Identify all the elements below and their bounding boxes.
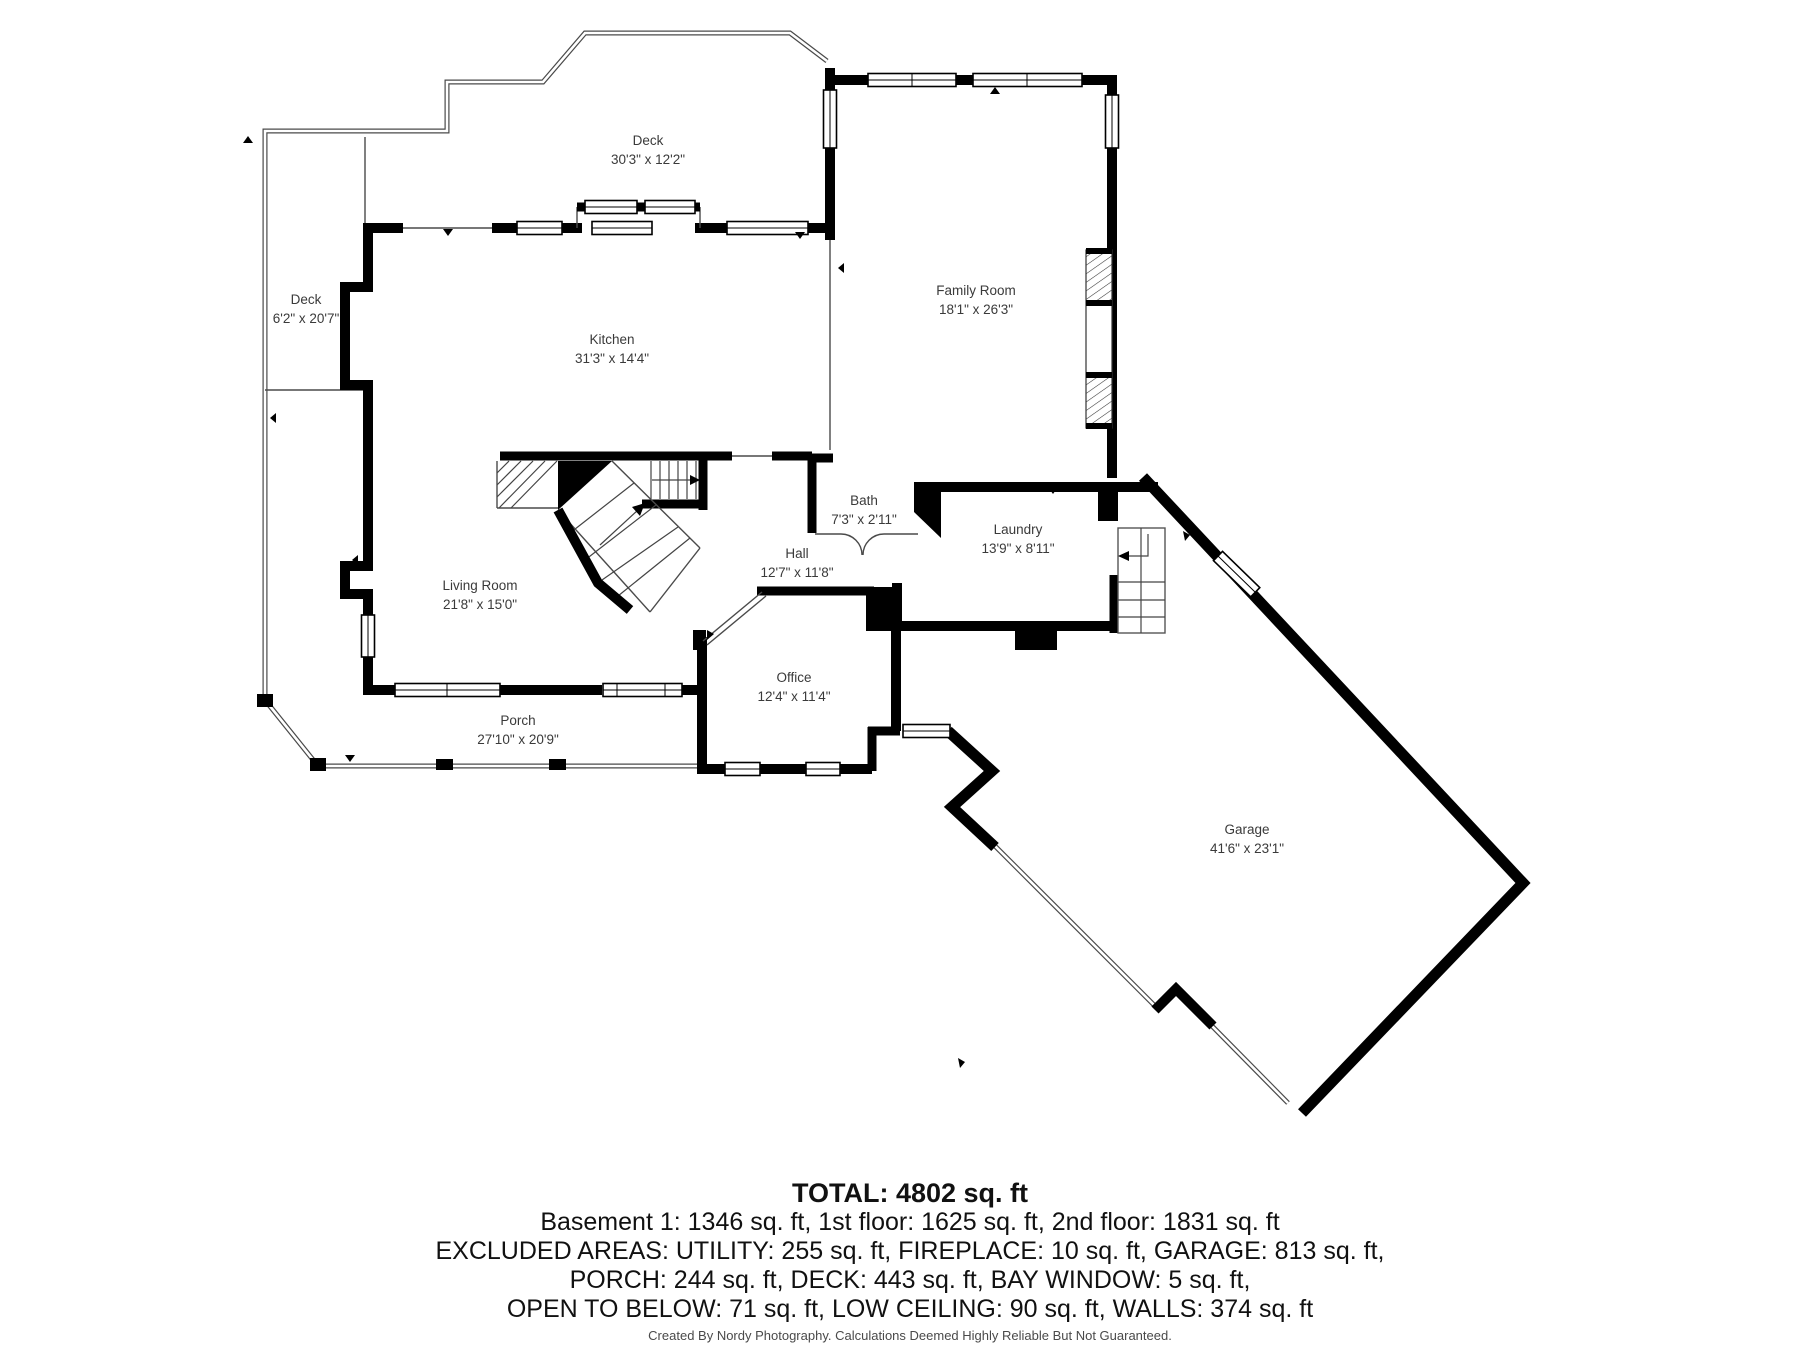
excluded-areas-text: EXCLUDED AREAS: UTILITY: 255 sq. ft, FIR… bbox=[0, 1237, 1820, 1266]
room-dims: 41'6" x 23'1" bbox=[1210, 841, 1284, 856]
room-dims: 31'3" x 14'4" bbox=[575, 351, 649, 366]
floor-plan-page: Deck30'3" x 12'2" Deck6'2" x 20'7" Kitch… bbox=[0, 0, 1820, 1365]
room-dims: 7'3" x 2'11" bbox=[831, 512, 897, 527]
room-name: Kitchen bbox=[589, 332, 634, 347]
room-dims: 18'1" x 26'3" bbox=[939, 302, 1013, 317]
fireplace-bay-window bbox=[1086, 248, 1112, 429]
room-dims: 12'4" x 11'4" bbox=[757, 689, 830, 704]
room-name: Garage bbox=[1224, 822, 1269, 837]
room-name: Porch bbox=[500, 713, 535, 728]
garage-staircase bbox=[1118, 528, 1165, 633]
room-dims: 12'7" x 11'8" bbox=[760, 565, 833, 580]
room-dims: 13'9" x 8'11" bbox=[981, 541, 1054, 556]
room-label-deck-left: Deck6'2" x 20'7" bbox=[273, 290, 340, 328]
room-label-porch: Porch27'10" x 20'9" bbox=[477, 711, 559, 749]
room-label-office: Office12'4" x 11'4" bbox=[757, 668, 830, 706]
room-label-family-room: Family Room18'1" x 26'3" bbox=[936, 281, 1016, 319]
room-label-garage: Garage41'6" x 23'1" bbox=[1210, 820, 1284, 858]
garage-door-lines bbox=[994, 845, 1288, 1103]
excluded-areas-text: PORCH: 244 sq. ft, DECK: 443 sq. ft, BAY… bbox=[0, 1266, 1820, 1295]
direction-ticks bbox=[243, 87, 1190, 1068]
room-name: Deck bbox=[291, 292, 322, 307]
room-label-hall: Hall12'7" x 11'8" bbox=[760, 544, 833, 582]
room-label-kitchen: Kitchen31'3" x 14'4" bbox=[575, 330, 649, 368]
room-label-bath: Bath7'3" x 2'11" bbox=[831, 491, 897, 529]
room-label-living-room: Living Room21'8" x 15'0" bbox=[442, 576, 517, 614]
area-summary: TOTAL: 4802 sq. ft Basement 1: 1346 sq. … bbox=[0, 1178, 1820, 1324]
room-label-deck-top: Deck30'3" x 12'2" bbox=[611, 131, 685, 169]
deck-railings bbox=[257, 33, 827, 771]
room-dims: 21'8" x 15'0" bbox=[443, 597, 517, 612]
excluded-areas-text: OPEN TO BELOW: 71 sq. ft, LOW CEILING: 9… bbox=[0, 1295, 1820, 1324]
room-name: Deck bbox=[633, 133, 664, 148]
room-dims: 27'10" x 20'9" bbox=[477, 732, 559, 747]
room-name: Hall bbox=[785, 546, 808, 561]
room-name: Laundry bbox=[994, 522, 1043, 537]
credit-text: Created By Nordy Photography. Calculatio… bbox=[0, 1328, 1820, 1343]
room-name: Living Room bbox=[442, 578, 517, 593]
floor-plan-drawing bbox=[0, 0, 1820, 1365]
main-staircase bbox=[497, 461, 700, 612]
room-label-laundry: Laundry13'9" x 8'11" bbox=[981, 520, 1054, 558]
floor-areas-text: Basement 1: 1346 sq. ft, 1st floor: 1625… bbox=[0, 1208, 1820, 1237]
room-name: Bath bbox=[850, 493, 878, 508]
total-area-text: TOTAL: 4802 sq. ft bbox=[0, 1178, 1820, 1208]
room-name: Family Room bbox=[936, 283, 1016, 298]
room-name: Office bbox=[776, 670, 811, 685]
room-dims: 6'2" x 20'7" bbox=[273, 311, 340, 326]
room-dims: 30'3" x 12'2" bbox=[611, 152, 685, 167]
